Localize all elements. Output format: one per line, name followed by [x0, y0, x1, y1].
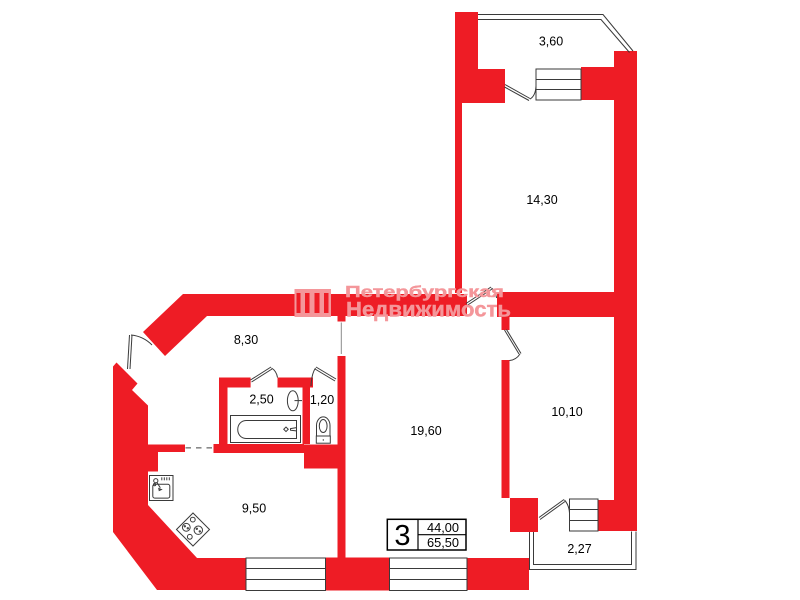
svg-text:9,50: 9,50 — [242, 501, 266, 515]
svg-text:3: 3 — [394, 520, 410, 552]
svg-text:44,00: 44,00 — [427, 520, 459, 535]
svg-text:3,60: 3,60 — [539, 35, 563, 49]
svg-text:10,10: 10,10 — [551, 405, 582, 419]
svg-text:1,20: 1,20 — [310, 393, 334, 407]
svg-text:19,60: 19,60 — [410, 424, 441, 438]
svg-text:Недвижимость: Недвижимость — [346, 299, 511, 322]
svg-text:2,27: 2,27 — [567, 542, 591, 556]
svg-text:2,50: 2,50 — [249, 393, 273, 407]
svg-text:8,30: 8,30 — [234, 333, 258, 347]
svg-text:65,50: 65,50 — [427, 535, 459, 550]
svg-text:14,30: 14,30 — [526, 193, 557, 207]
